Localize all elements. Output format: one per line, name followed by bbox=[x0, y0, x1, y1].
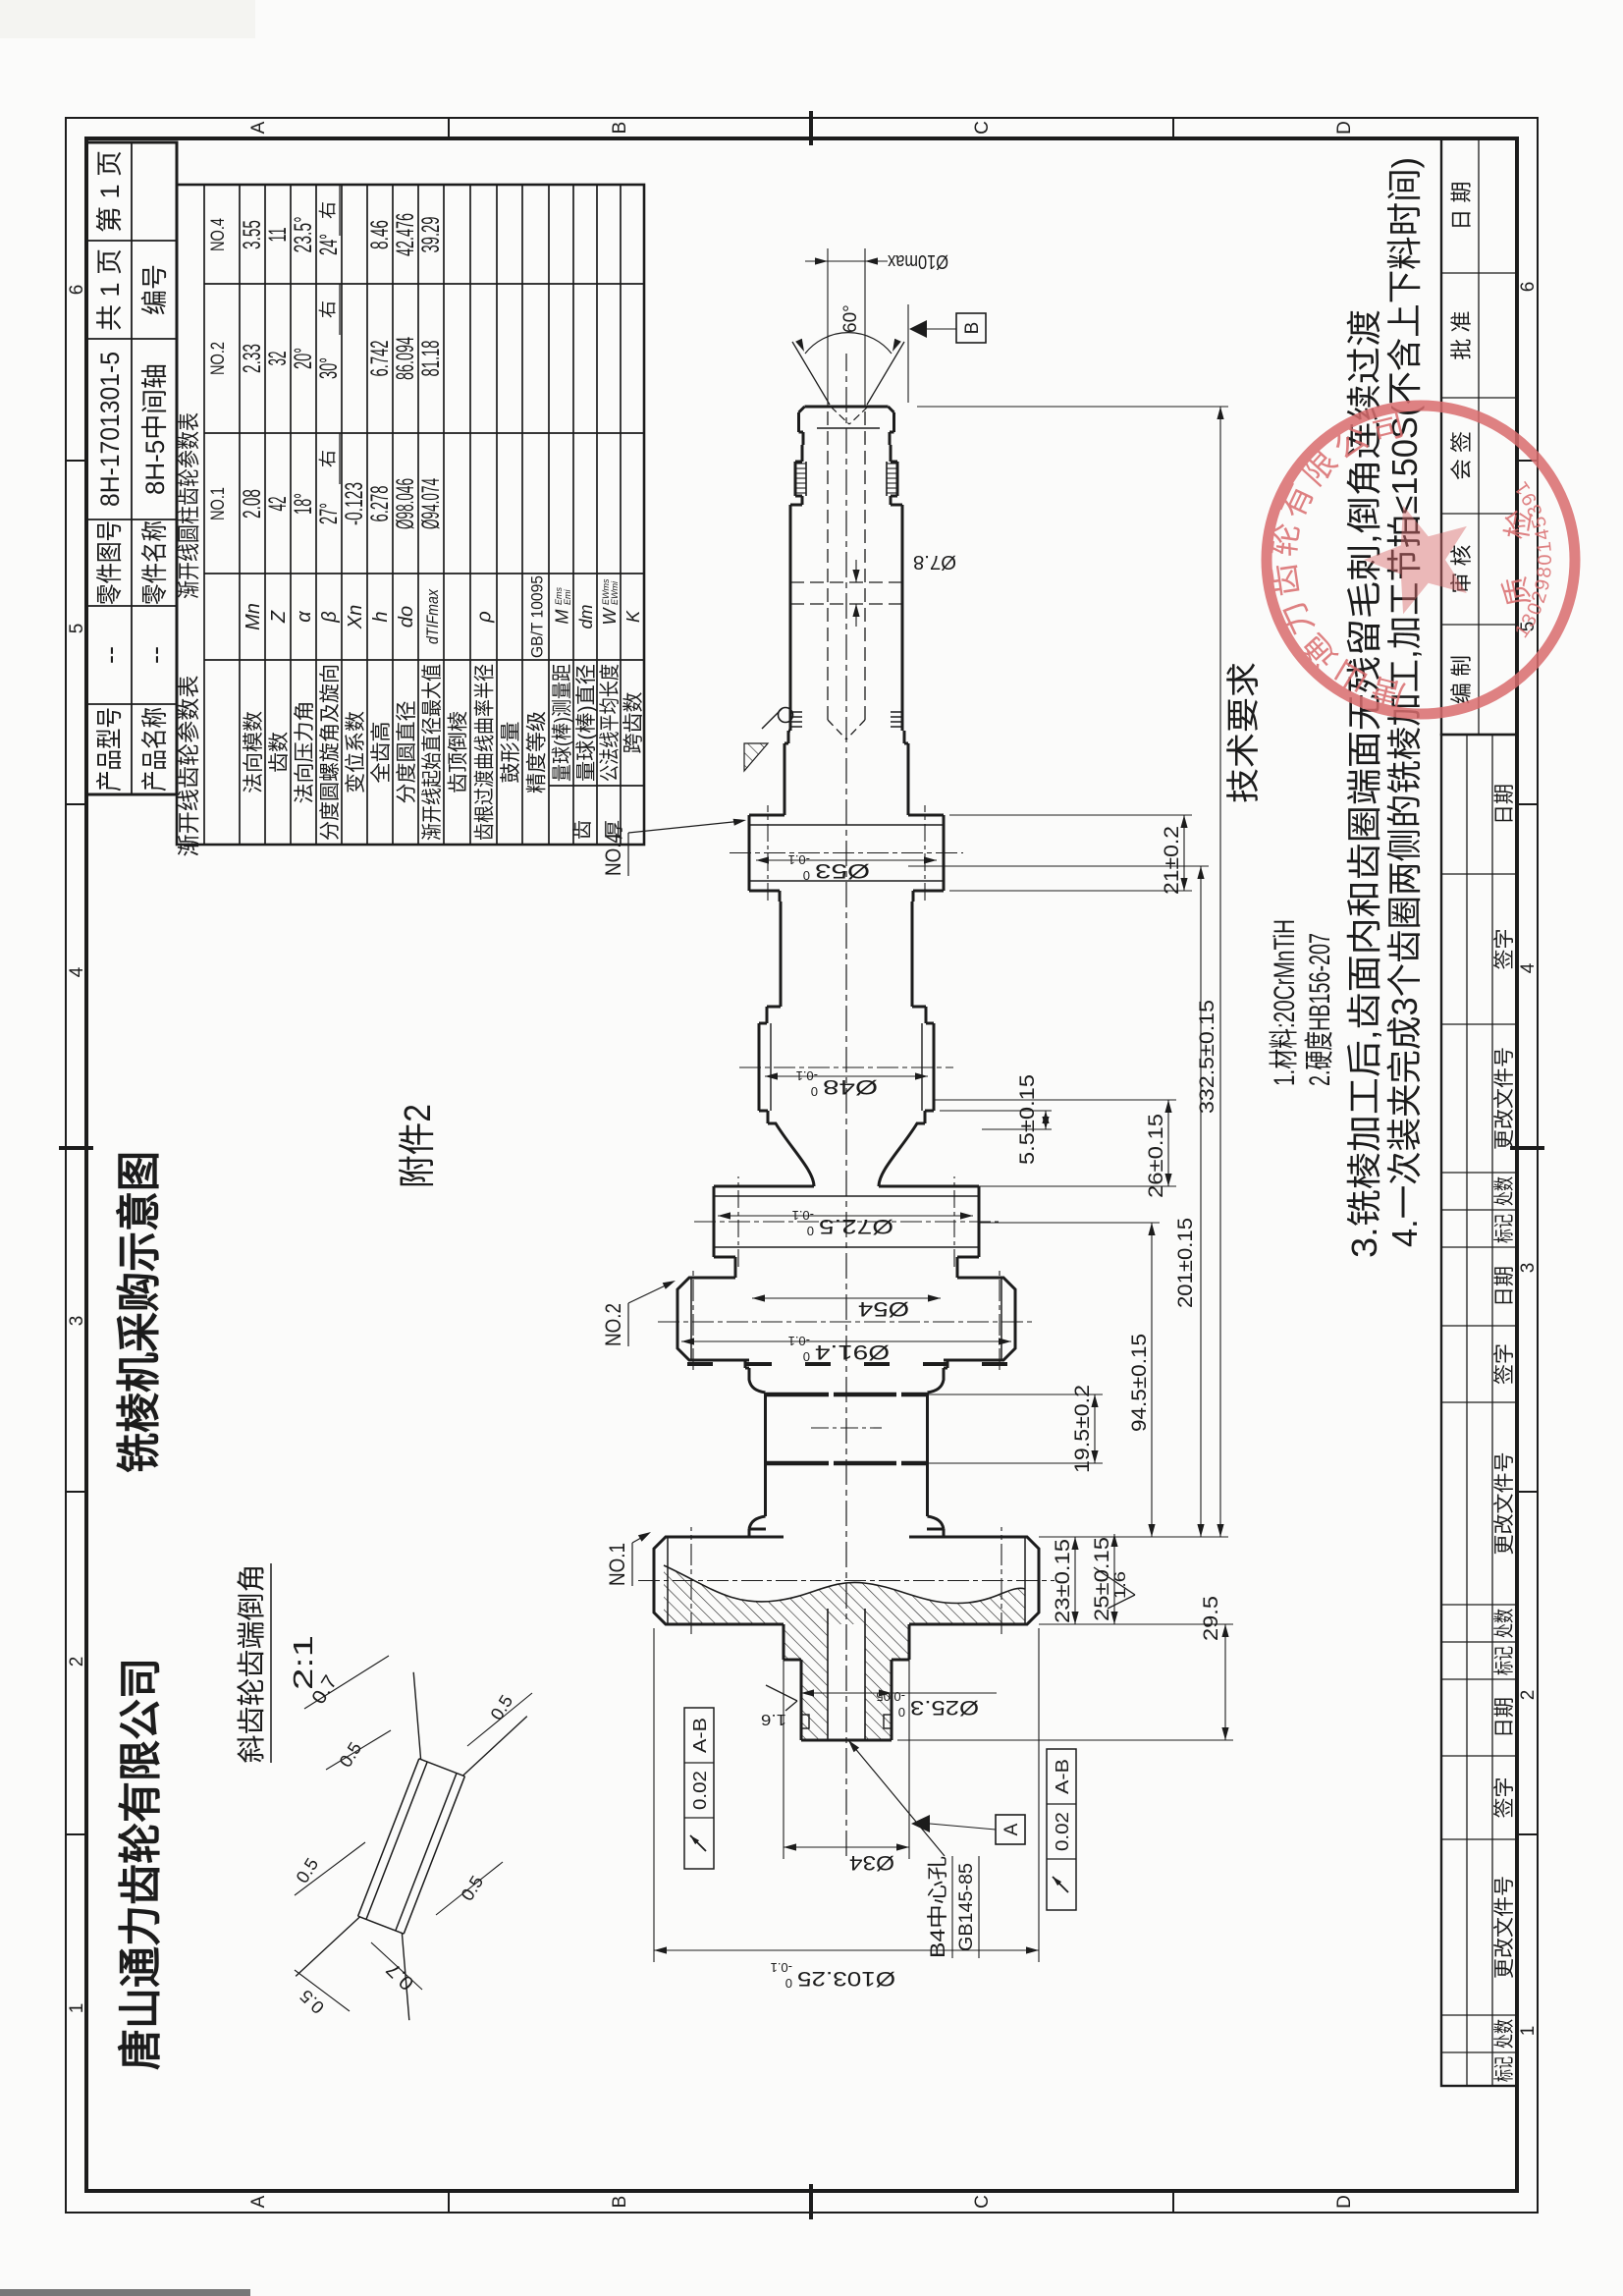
svg-text:Ø72.5: Ø72.5 bbox=[819, 1215, 893, 1237]
svg-text:0.02: 0.02 bbox=[1053, 1812, 1072, 1851]
svg-text:-0.123: -0.123 bbox=[341, 482, 368, 525]
svg-text:产品名称: 产品名称 bbox=[140, 707, 170, 792]
svg-text:86.094: 86.094 bbox=[392, 337, 419, 380]
svg-text:斜齿轮齿端倒角: 斜齿轮齿端倒角 bbox=[236, 1564, 268, 1764]
svg-text:Z: Z bbox=[268, 610, 290, 624]
svg-text:法向压力角: 法向压力角 bbox=[294, 701, 316, 804]
svg-text:-0.1: -0.1 bbox=[788, 852, 810, 867]
svg-text:批 准: 批 准 bbox=[1449, 310, 1474, 359]
svg-text:右: 右 bbox=[318, 450, 338, 467]
svg-text:渐开线圆柱齿轮参数表: 渐开线圆柱齿轮参数表 bbox=[176, 412, 201, 599]
svg-text:3: 3 bbox=[1518, 1263, 1539, 1274]
svg-text:0: 0 bbox=[803, 1349, 810, 1364]
svg-text:8.46: 8.46 bbox=[366, 220, 394, 249]
svg-text:右: 右 bbox=[318, 301, 338, 318]
svg-text:更改文件号: 更改文件号 bbox=[1493, 1452, 1516, 1556]
svg-text:右: 右 bbox=[318, 201, 338, 219]
svg-text:NO.1: NO.1 bbox=[605, 1543, 629, 1586]
svg-text:产品型号: 产品型号 bbox=[95, 707, 125, 792]
svg-text:3: 3 bbox=[67, 1316, 87, 1327]
svg-text:Emi: Emi bbox=[563, 589, 572, 606]
svg-text:标记: 标记 bbox=[1493, 2056, 1516, 2082]
svg-text:Ø10max: Ø10max bbox=[888, 250, 948, 272]
svg-text:C: C bbox=[972, 2195, 993, 2209]
svg-text:23±0.15: 23±0.15 bbox=[1052, 1539, 1074, 1623]
svg-text:Ø7.8: Ø7.8 bbox=[913, 551, 956, 573]
svg-text:4: 4 bbox=[67, 966, 87, 977]
svg-text:Ø98.046: Ø98.046 bbox=[392, 478, 419, 529]
svg-text:-0.05: -0.05 bbox=[876, 1689, 905, 1704]
svg-text:--: -- bbox=[140, 646, 170, 664]
svg-text:跨齿数: 跨齿数 bbox=[622, 692, 645, 754]
svg-text:21±0.2: 21±0.2 bbox=[1161, 826, 1183, 895]
svg-text:30°: 30° bbox=[315, 357, 343, 379]
svg-text:Ø103.25: Ø103.25 bbox=[797, 1967, 895, 1990]
svg-text:D: D bbox=[1334, 121, 1355, 135]
svg-text:全齿高: 全齿高 bbox=[370, 722, 393, 784]
svg-text:Ø48: Ø48 bbox=[823, 1075, 878, 1098]
svg-text:11: 11 bbox=[264, 228, 292, 243]
svg-text:日期: 日期 bbox=[1493, 1697, 1516, 1738]
svg-text:铣棱机采购示意图: 铣棱机采购示意图 bbox=[114, 1151, 164, 1473]
svg-text:齿根过渡曲线曲率半径: 齿根过渡曲线曲率半径 bbox=[474, 664, 497, 841]
svg-text:K: K bbox=[623, 610, 643, 623]
svg-text:42.476: 42.476 bbox=[392, 213, 419, 256]
svg-text:轮: 轮 bbox=[1265, 520, 1307, 559]
svg-text:2: 2 bbox=[1518, 1690, 1539, 1701]
svg-text:量球(棒)测量距: 量球(棒)测量距 bbox=[552, 664, 574, 782]
svg-text:do: do bbox=[396, 606, 417, 628]
svg-text:-0.1: -0.1 bbox=[796, 1068, 818, 1083]
svg-text:94.5±0.15: 94.5±0.15 bbox=[1128, 1334, 1151, 1432]
svg-text:B: B bbox=[610, 122, 630, 135]
svg-text:分度圆直径: 分度圆直径 bbox=[396, 701, 418, 804]
svg-text:8H-5中间轴: 8H-5中间轴 bbox=[140, 363, 170, 495]
svg-text:NO.1: NO.1 bbox=[208, 487, 229, 520]
svg-text:齿顶倒棱: 齿顶倒棱 bbox=[448, 711, 470, 793]
svg-text:Xn: Xn bbox=[345, 605, 366, 629]
svg-text:NO.4: NO.4 bbox=[601, 833, 625, 876]
svg-text:26±0.15: 26±0.15 bbox=[1145, 1114, 1167, 1198]
svg-text:标记: 标记 bbox=[1493, 1214, 1516, 1243]
svg-text:β: β bbox=[319, 611, 341, 623]
svg-text:零件名称: 零件名称 bbox=[140, 520, 170, 605]
svg-text:齿: 齿 bbox=[1265, 561, 1307, 599]
svg-text:6: 6 bbox=[1518, 282, 1539, 293]
svg-text:编号: 编号 bbox=[140, 264, 170, 315]
svg-text:标记: 标记 bbox=[1493, 1646, 1516, 1675]
svg-text:ρ: ρ bbox=[474, 611, 496, 623]
svg-text:6: 6 bbox=[67, 285, 87, 296]
svg-text:5.5±0.15: 5.5±0.15 bbox=[1016, 1074, 1039, 1165]
svg-text:8: 8 bbox=[1534, 566, 1556, 578]
svg-text:编 制: 编 制 bbox=[1449, 655, 1474, 704]
svg-text:签字: 签字 bbox=[1493, 1343, 1516, 1385]
svg-text:B: B bbox=[962, 322, 983, 335]
svg-text:19.5±0.2: 19.5±0.2 bbox=[1071, 1385, 1094, 1473]
svg-text:会 签: 会 签 bbox=[1449, 431, 1474, 480]
svg-text:Ø25.3: Ø25.3 bbox=[910, 1696, 979, 1719]
svg-text:处数: 处数 bbox=[1493, 1609, 1516, 1638]
svg-text:24°: 24° bbox=[315, 234, 343, 255]
svg-text:0: 0 bbox=[807, 1224, 814, 1238]
svg-text:齿数: 齿数 bbox=[268, 732, 291, 773]
svg-text:2.08: 2.08 bbox=[239, 489, 266, 519]
svg-text:W: W bbox=[600, 607, 620, 626]
svg-text:变位系数: 变位系数 bbox=[345, 711, 367, 793]
svg-text:18°: 18° bbox=[290, 493, 317, 515]
svg-text:公法线平均长度: 公法线平均长度 bbox=[599, 664, 622, 782]
svg-text:1: 1 bbox=[67, 2003, 87, 2014]
svg-text:日 期: 日 期 bbox=[1449, 181, 1474, 230]
svg-text:Ø91.4: Ø91.4 bbox=[815, 1340, 890, 1363]
svg-text:-0.1: -0.1 bbox=[788, 1334, 810, 1348]
svg-text:Ø53: Ø53 bbox=[815, 859, 870, 882]
svg-text:29.5: 29.5 bbox=[1200, 1596, 1222, 1641]
svg-text:NO.4: NO.4 bbox=[208, 218, 229, 251]
svg-text:25±0.15: 25±0.15 bbox=[1091, 1537, 1113, 1621]
svg-text:处数: 处数 bbox=[1493, 2019, 1516, 2049]
svg-text:5: 5 bbox=[67, 624, 87, 634]
svg-text:法向模数: 法向模数 bbox=[243, 711, 265, 793]
svg-text:渐开线起始直径最大值: 渐开线起始直径最大值 bbox=[421, 664, 444, 841]
svg-text:唐山通力齿轮有限公司: 唐山通力齿轮有限公司 bbox=[116, 1658, 165, 2070]
svg-text:更改文件号: 更改文件号 bbox=[1493, 1047, 1516, 1150]
svg-text:Ø94.074: Ø94.074 bbox=[417, 478, 445, 529]
svg-text:分度圆螺旋角及旋向: 分度圆螺旋角及旋向 bbox=[319, 664, 342, 841]
svg-text:dm: dm bbox=[576, 604, 596, 629]
svg-text:A: A bbox=[248, 2195, 269, 2208]
svg-text:6.742: 6.742 bbox=[366, 341, 394, 377]
svg-text:GB/T 10095: GB/T 10095 bbox=[528, 575, 547, 658]
svg-text:1: 1 bbox=[1518, 2026, 1539, 2037]
svg-text:零件图号: 零件图号 bbox=[95, 520, 125, 605]
svg-text:32: 32 bbox=[264, 352, 292, 366]
svg-text:2: 2 bbox=[67, 1657, 87, 1667]
svg-text:201±0.15: 201±0.15 bbox=[1174, 1218, 1197, 1308]
svg-text:6.278: 6.278 bbox=[366, 486, 394, 522]
svg-text:39.29: 39.29 bbox=[417, 217, 445, 253]
svg-text:81.18: 81.18 bbox=[417, 341, 445, 377]
svg-text:27°: 27° bbox=[315, 503, 343, 524]
svg-text:-0.1: -0.1 bbox=[792, 1208, 814, 1223]
svg-text:共 1 页: 共 1 页 bbox=[95, 248, 125, 331]
svg-text:量球(棒)直径: 量球(棒)直径 bbox=[575, 664, 598, 782]
svg-text:齿: 齿 bbox=[571, 820, 594, 840]
svg-text:签字: 签字 bbox=[1493, 1777, 1516, 1819]
svg-text:h: h bbox=[370, 611, 392, 622]
svg-text:检: 检 bbox=[1501, 508, 1539, 542]
svg-text:Ø54: Ø54 bbox=[858, 1297, 909, 1320]
svg-text:第 1 页: 第 1 页 bbox=[95, 150, 125, 233]
svg-text:NO.2: NO.2 bbox=[601, 1303, 625, 1346]
svg-text:23.5°: 23.5° bbox=[290, 217, 317, 253]
svg-text:处数: 处数 bbox=[1493, 1176, 1516, 1206]
svg-text:日期: 日期 bbox=[1493, 1266, 1516, 1307]
svg-text:A-B: A-B bbox=[690, 1718, 710, 1753]
svg-text:NO.2: NO.2 bbox=[208, 342, 229, 375]
svg-text:日期: 日期 bbox=[1493, 784, 1516, 825]
svg-text:更改文件号: 更改文件号 bbox=[1493, 1876, 1516, 1979]
svg-text:B: B bbox=[610, 2196, 630, 2209]
svg-text:鼓形量: 鼓形量 bbox=[500, 722, 522, 784]
svg-text:精度等级: 精度等级 bbox=[526, 711, 549, 793]
svg-text:A: A bbox=[1001, 1823, 1022, 1835]
svg-text:3.55: 3.55 bbox=[239, 220, 266, 249]
svg-text:42: 42 bbox=[264, 497, 292, 512]
svg-text:0: 0 bbox=[803, 868, 810, 883]
svg-text:8H-1701301-5: 8H-1701301-5 bbox=[95, 352, 125, 507]
svg-text:-0.1: -0.1 bbox=[771, 1960, 792, 1975]
svg-text:Mn: Mn bbox=[243, 603, 264, 630]
svg-text:--: -- bbox=[95, 646, 125, 664]
svg-text:0: 0 bbox=[898, 1705, 905, 1720]
svg-text:4: 4 bbox=[1518, 962, 1539, 973]
svg-text:GB145-85: GB145-85 bbox=[956, 1863, 977, 1951]
svg-text:B4中心孔: B4中心孔 bbox=[927, 1856, 949, 1958]
svg-text:技术要求: 技术要求 bbox=[1225, 662, 1263, 803]
svg-text:2.硬度HB156-207: 2.硬度HB156-207 bbox=[1304, 933, 1336, 1086]
svg-text:0: 0 bbox=[1535, 554, 1556, 565]
svg-text:渐开线齿轮参数表: 渐开线齿轮参数表 bbox=[176, 676, 201, 857]
svg-text:A-B: A-B bbox=[1053, 1759, 1072, 1794]
svg-text:1.6: 1.6 bbox=[761, 1711, 786, 1727]
svg-text:α: α bbox=[294, 611, 315, 623]
svg-text:2.33: 2.33 bbox=[239, 344, 266, 373]
svg-text:D: D bbox=[1334, 2195, 1355, 2209]
svg-text:0: 0 bbox=[785, 1976, 792, 1991]
svg-text:332.5±0.15: 332.5±0.15 bbox=[1196, 1000, 1218, 1114]
svg-text:签字: 签字 bbox=[1493, 929, 1516, 970]
svg-text:0: 0 bbox=[811, 1084, 818, 1099]
svg-text:M: M bbox=[553, 610, 572, 625]
svg-text:2:1: 2:1 bbox=[288, 1635, 318, 1690]
svg-text:0.02: 0.02 bbox=[690, 1771, 710, 1810]
svg-text:dTIFmax: dTIFmax bbox=[423, 589, 442, 644]
svg-text:A: A bbox=[248, 121, 269, 134]
svg-text:60°: 60° bbox=[840, 304, 861, 333]
svg-text:附件2: 附件2 bbox=[398, 1104, 439, 1188]
svg-text:Ø34: Ø34 bbox=[849, 1851, 894, 1874]
svg-text:EWmi: EWmi bbox=[610, 580, 620, 605]
svg-text:1.材料:20CrMnTiH: 1.材料:20CrMnTiH bbox=[1269, 919, 1301, 1086]
svg-text:C: C bbox=[972, 121, 993, 135]
svg-text:1: 1 bbox=[1534, 540, 1556, 553]
svg-text:20°: 20° bbox=[290, 348, 317, 369]
